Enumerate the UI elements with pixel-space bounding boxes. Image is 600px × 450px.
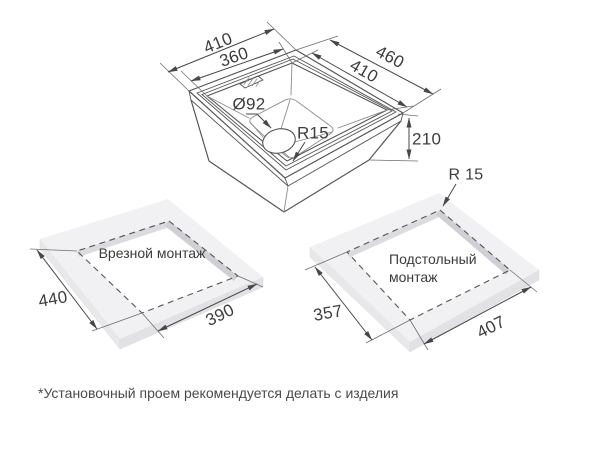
sink-technical-drawing: 410 360 460 410 210 Ø92	[0, 0, 600, 450]
dim-undermount-radius-label: R 15	[449, 167, 484, 184]
technical-drawing-page: 410 360 460 410 210 Ø92	[0, 0, 600, 450]
dim-undermount-depth-label: 407	[474, 312, 509, 342]
dim-height-label: 210	[412, 130, 441, 149]
dim-undermount-width-label: 357	[312, 301, 344, 325]
dim-inset-width-label: 440	[37, 287, 69, 311]
inset-mount-diagram: Врезной монтаж 440 390	[30, 199, 263, 349]
inset-mount-title: Врезной монтаж	[99, 245, 206, 261]
footnote: *Установочный проем рекомендуется делать…	[38, 385, 398, 401]
dim-drain-diameter-label: Ø92	[232, 95, 265, 114]
undermount-title-line1: Подстольный	[389, 251, 477, 267]
undermount-diagram: Подстольный монтаж R 15 357 407	[305, 167, 539, 353]
dim-undermount-radius: R 15	[443, 167, 484, 207]
undermount-title-line2: монтаж	[389, 269, 438, 285]
dim-corner-radius-label: R15	[297, 124, 329, 143]
sink-body-front-crease	[284, 186, 288, 212]
sink-isometric-view: 410 360 460 410 210 Ø92	[160, 22, 441, 212]
